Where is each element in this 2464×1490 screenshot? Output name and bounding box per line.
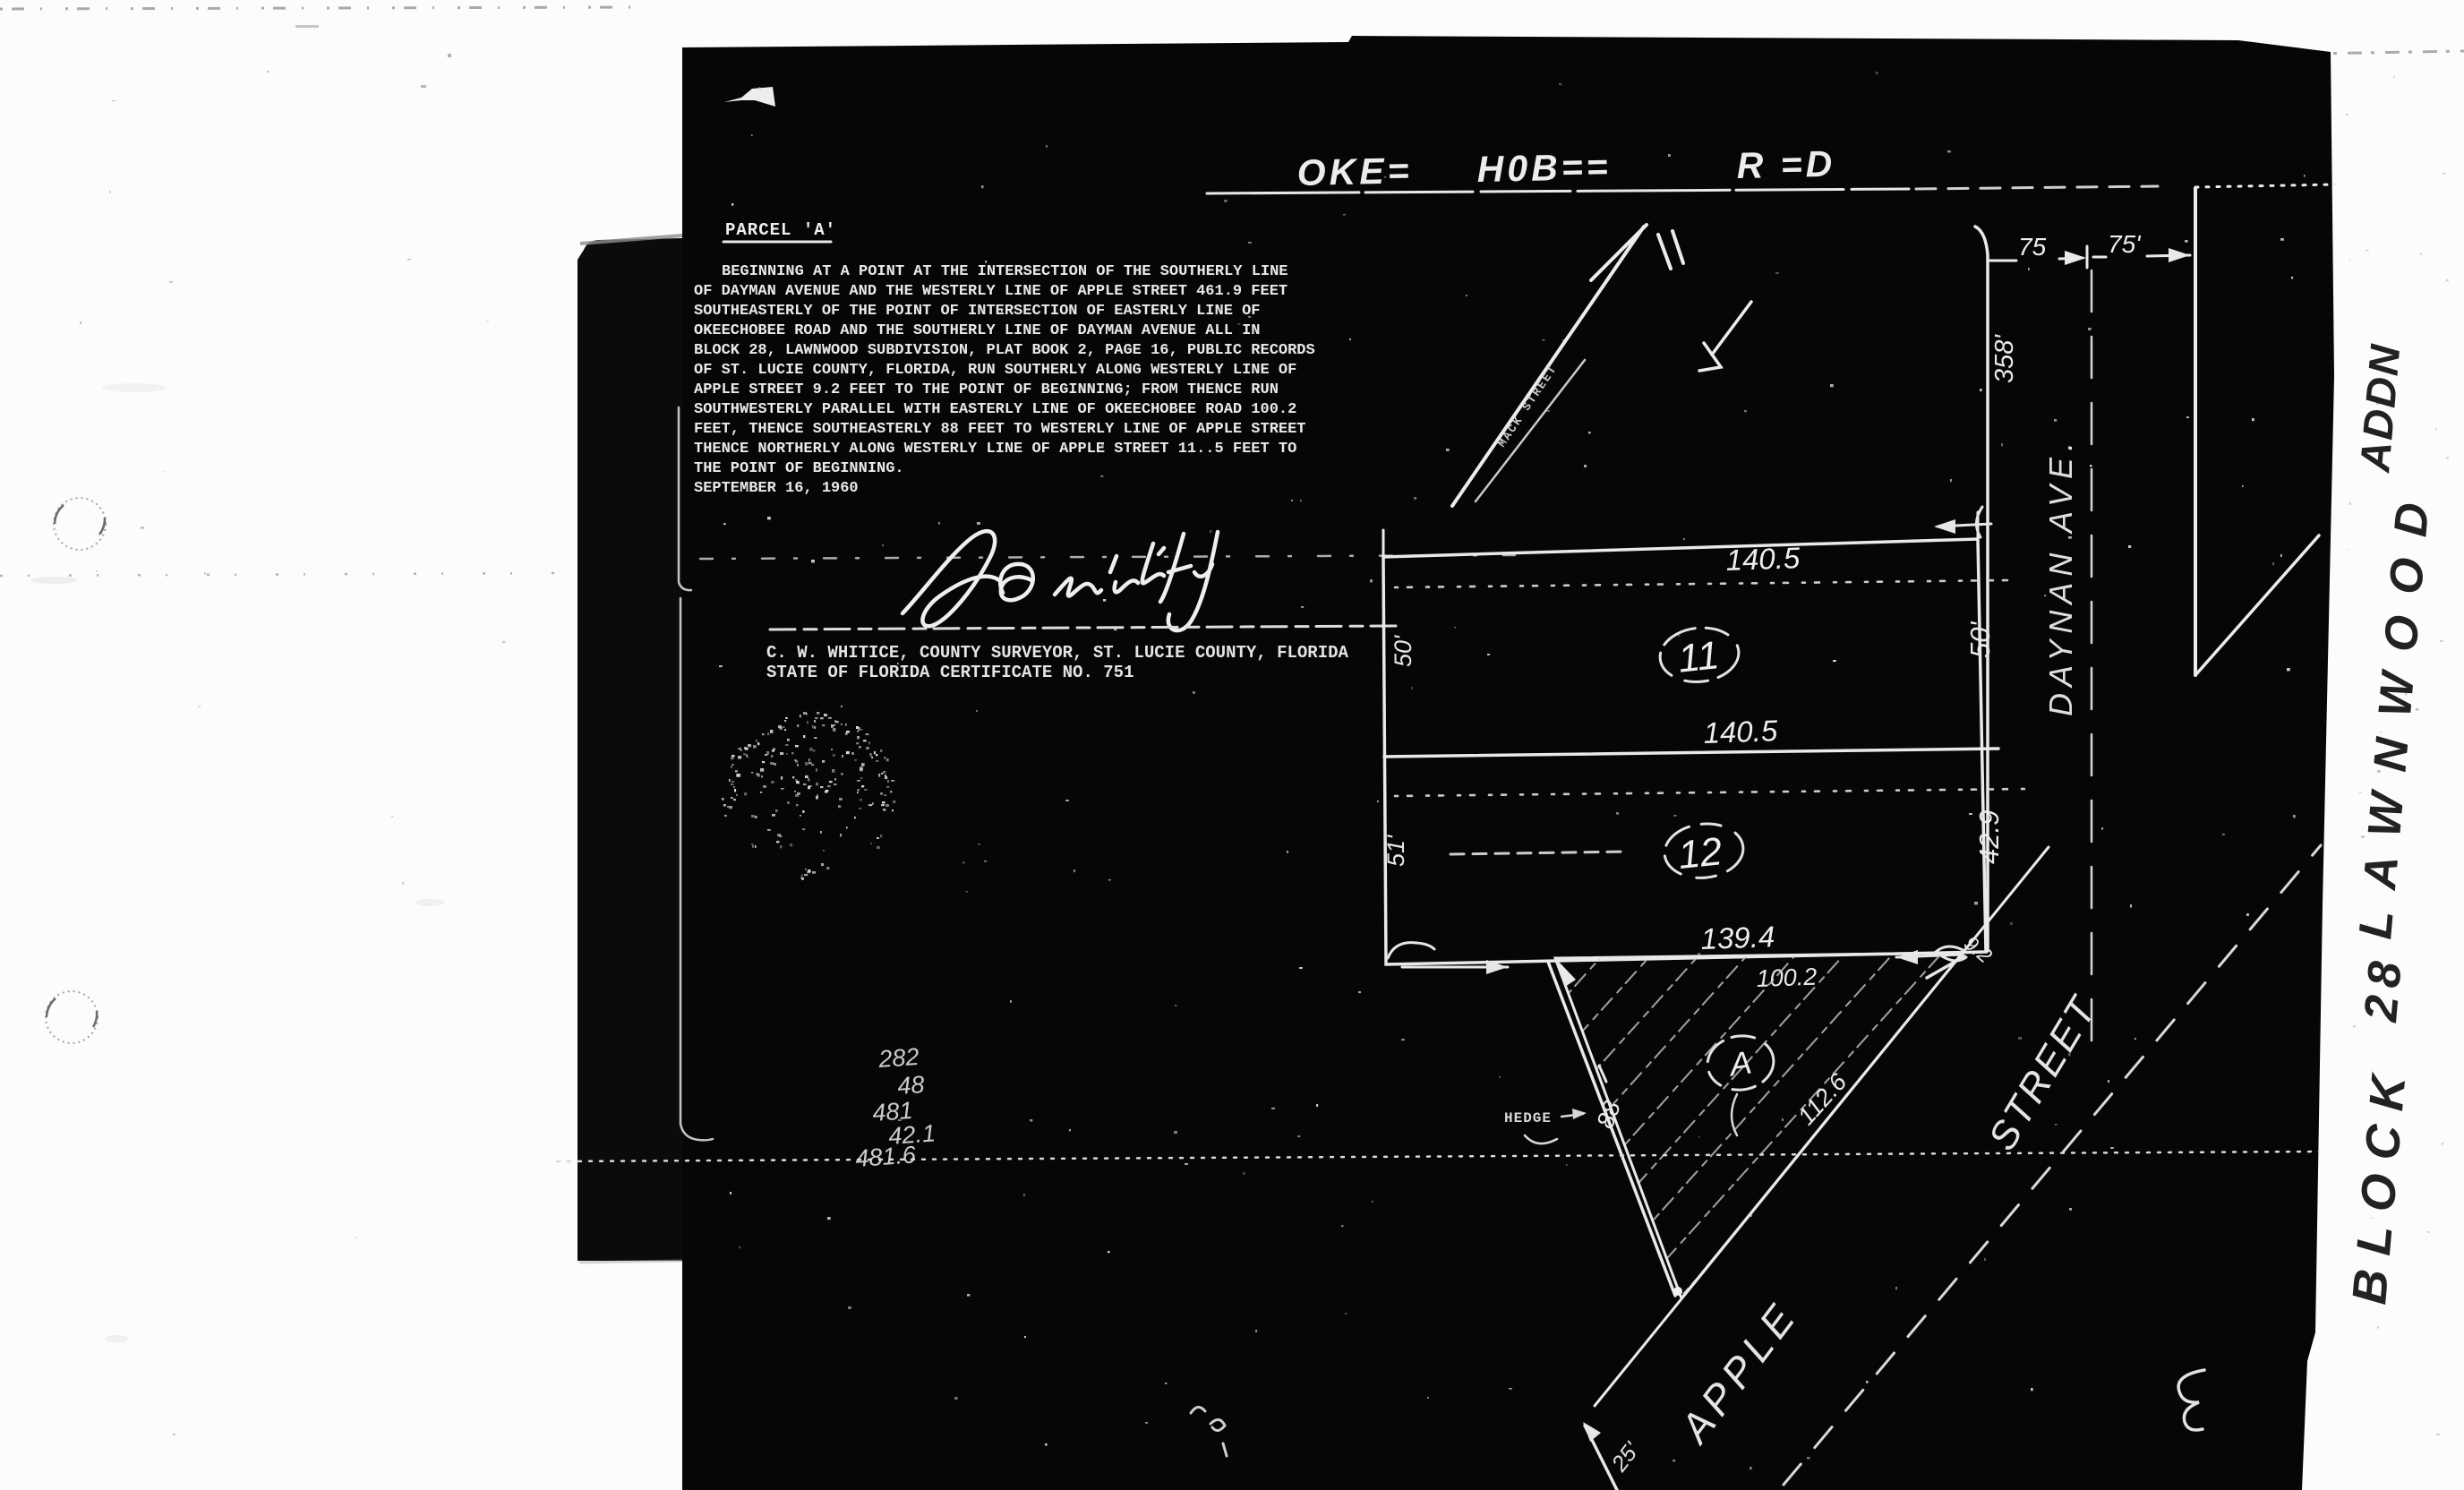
svg-text:11: 11 bbox=[1676, 633, 1722, 681]
svg-text:H0B==: H0B== bbox=[1476, 146, 1612, 190]
svg-text:THENCE NORTHERLY ALONG WESTERL: THENCE NORTHERLY ALONG WESTERLY LINE OF … bbox=[694, 441, 1296, 458]
svg-text:STATE OF FLORIDA CERTIFICATE N: STATE OF FLORIDA CERTIFICATE NO. 751 bbox=[766, 663, 1134, 682]
svg-text:C. W. WHITICE, COUNTY SURVEYOR: C. W. WHITICE, COUNTY SURVEYOR, ST. LUCI… bbox=[766, 643, 1349, 663]
svg-text:75: 75 bbox=[2018, 233, 2047, 261]
svg-text:BLOCK 28, LAWNWOOD SUBDIVISION: BLOCK 28, LAWNWOOD SUBDIVISION, PLAT BOO… bbox=[694, 342, 1315, 359]
svg-text:358': 358' bbox=[1990, 334, 2019, 383]
svg-text:75': 75' bbox=[2108, 230, 2142, 258]
svg-text:OF DAYMAN AVENUE AND THE WESTE: OF DAYMAN AVENUE AND THE WESTERLY LINE O… bbox=[694, 283, 1288, 300]
svg-text:HEDGE: HEDGE bbox=[1504, 1110, 1552, 1126]
svg-text:OKEECHOBEE ROAD AND THE SOUTHE: OKEECHOBEE ROAD AND THE SOUTHERLY LINE O… bbox=[694, 322, 1261, 339]
svg-text:OF ST. LUCIE COUNTY, FLORIDA,: OF ST. LUCIE COUNTY, FLORIDA, RUN SOUTHE… bbox=[694, 362, 1296, 379]
svg-text:481.6: 481.6 bbox=[854, 1141, 917, 1172]
svg-text:12: 12 bbox=[1676, 829, 1724, 878]
svg-text:SOUTHWESTERLY PARALLEL WITH EA: SOUTHWESTERLY PARALLEL WITH EASTERLY LIN… bbox=[694, 401, 1296, 418]
svg-text:140.5: 140.5 bbox=[1703, 714, 1778, 749]
svg-text:PARCEL 'A': PARCEL 'A' bbox=[725, 220, 836, 240]
svg-text:R =D: R =D bbox=[1736, 143, 1836, 186]
svg-text:SEPTEMBER 16, 1960: SEPTEMBER 16, 1960 bbox=[694, 480, 859, 497]
svg-text:282: 282 bbox=[877, 1043, 920, 1073]
svg-text:FEET, THENCE SOUTHEASTERLY 88: FEET, THENCE SOUTHEASTERLY 88 FEET TO WE… bbox=[694, 421, 1306, 438]
svg-text:APPLE STREET 9.2 FEET TO THE P: APPLE STREET 9.2 FEET TO THE POINT OF BE… bbox=[694, 381, 1279, 398]
svg-text:50': 50' bbox=[1390, 635, 1416, 667]
svg-text:BEGINNING AT A POINT AT THE IN: BEGINNING AT A POINT AT THE INTERSECTION… bbox=[722, 263, 1288, 280]
svg-text:50': 50' bbox=[1964, 621, 1996, 658]
svg-text:48: 48 bbox=[896, 1071, 925, 1100]
svg-text:139.4: 139.4 bbox=[1700, 920, 1775, 955]
svg-text:140.5: 140.5 bbox=[1725, 541, 1801, 577]
svg-text:THE POINT OF BEGINNING.: THE POINT OF BEGINNING. bbox=[694, 460, 904, 477]
svg-text:DAYNAN AVE.: DAYNAN AVE. bbox=[2042, 436, 2079, 716]
svg-text:SOUTHEASTERLY OF THE POINT OF: SOUTHEASTERLY OF THE POINT OF INTERSECTI… bbox=[694, 303, 1261, 320]
svg-text:OKE=: OKE= bbox=[1296, 150, 1413, 193]
svg-text:28: 28 bbox=[2355, 951, 2412, 1024]
svg-text:51': 51' bbox=[1382, 835, 1409, 867]
